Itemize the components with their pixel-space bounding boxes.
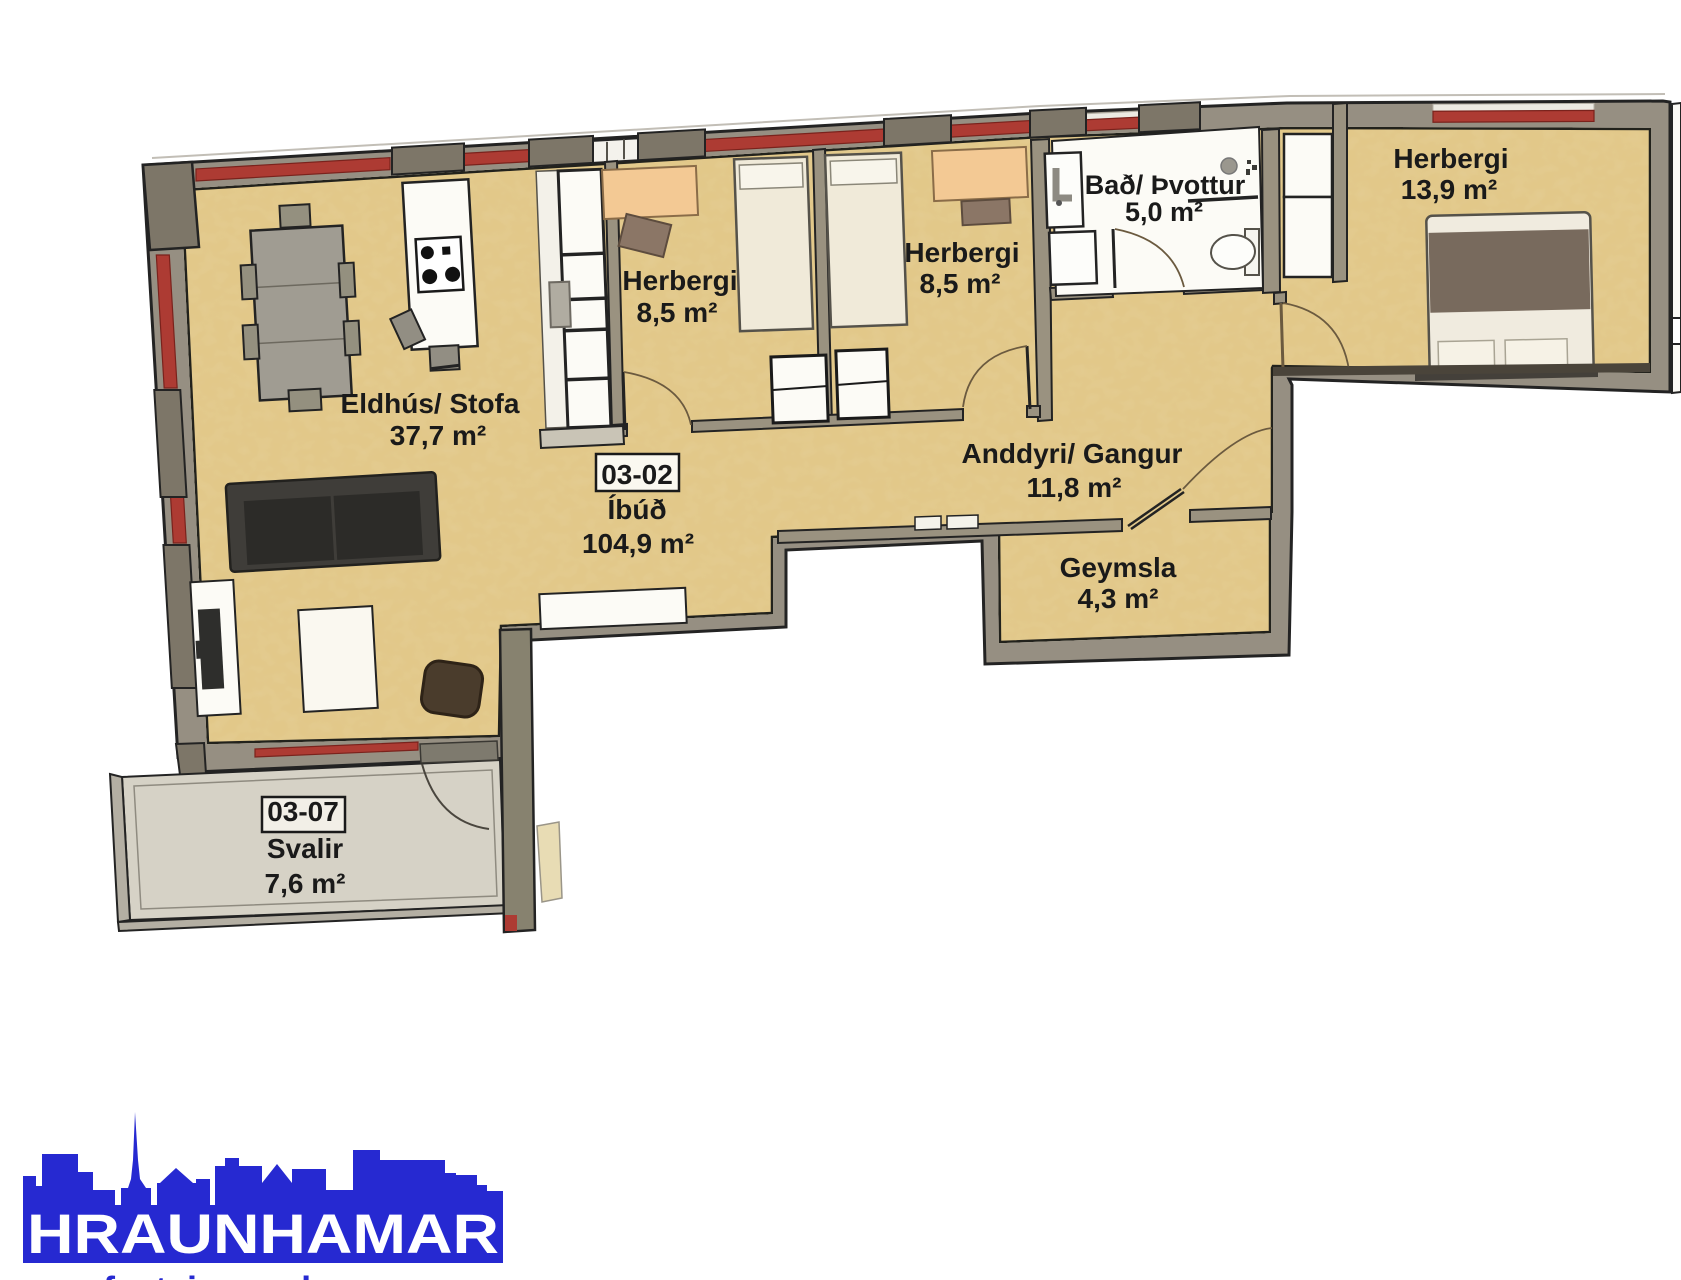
svg-text:5,0 m²: 5,0 m² <box>1125 197 1203 227</box>
svg-text:Geymsla: Geymsla <box>1060 552 1177 583</box>
svg-text:4,3 m²: 4,3 m² <box>1078 583 1159 614</box>
svg-text:11,8 m²: 11,8 m² <box>1027 472 1122 503</box>
svg-text:03-02: 03-02 <box>601 459 673 490</box>
svg-text:Bað/ Þvottur: Bað/ Þvottur <box>1085 170 1246 200</box>
svg-text:7,6 m²: 7,6 m² <box>265 868 346 899</box>
svg-text:13,9 m²: 13,9 m² <box>1401 174 1498 205</box>
svg-text:104,9 m²: 104,9 m² <box>582 528 694 559</box>
svg-text:Herbergi: Herbergi <box>1393 143 1508 174</box>
svg-text:Svalir: Svalir <box>267 833 343 864</box>
svg-text:03-07: 03-07 <box>267 796 339 827</box>
svg-text:37,7 m²: 37,7 m² <box>390 420 487 451</box>
svg-text:HRAUNHAMAR: HRAUNHAMAR <box>27 1202 499 1265</box>
svg-text:8,5 m²: 8,5 m² <box>637 297 718 328</box>
svg-text:Anddyri/ Gangur: Anddyri/ Gangur <box>962 438 1183 469</box>
svg-text:Íbúð: Íbúð <box>607 494 666 525</box>
svg-text:Eldhús/ Stofa: Eldhús/ Stofa <box>341 388 520 419</box>
svg-text:Herbergi: Herbergi <box>904 237 1019 268</box>
svg-text:Herbergi: Herbergi <box>622 265 737 296</box>
svg-text:fasteignasala: fasteignasala <box>103 1269 332 1280</box>
svg-text:8,5 m²: 8,5 m² <box>920 268 1001 299</box>
